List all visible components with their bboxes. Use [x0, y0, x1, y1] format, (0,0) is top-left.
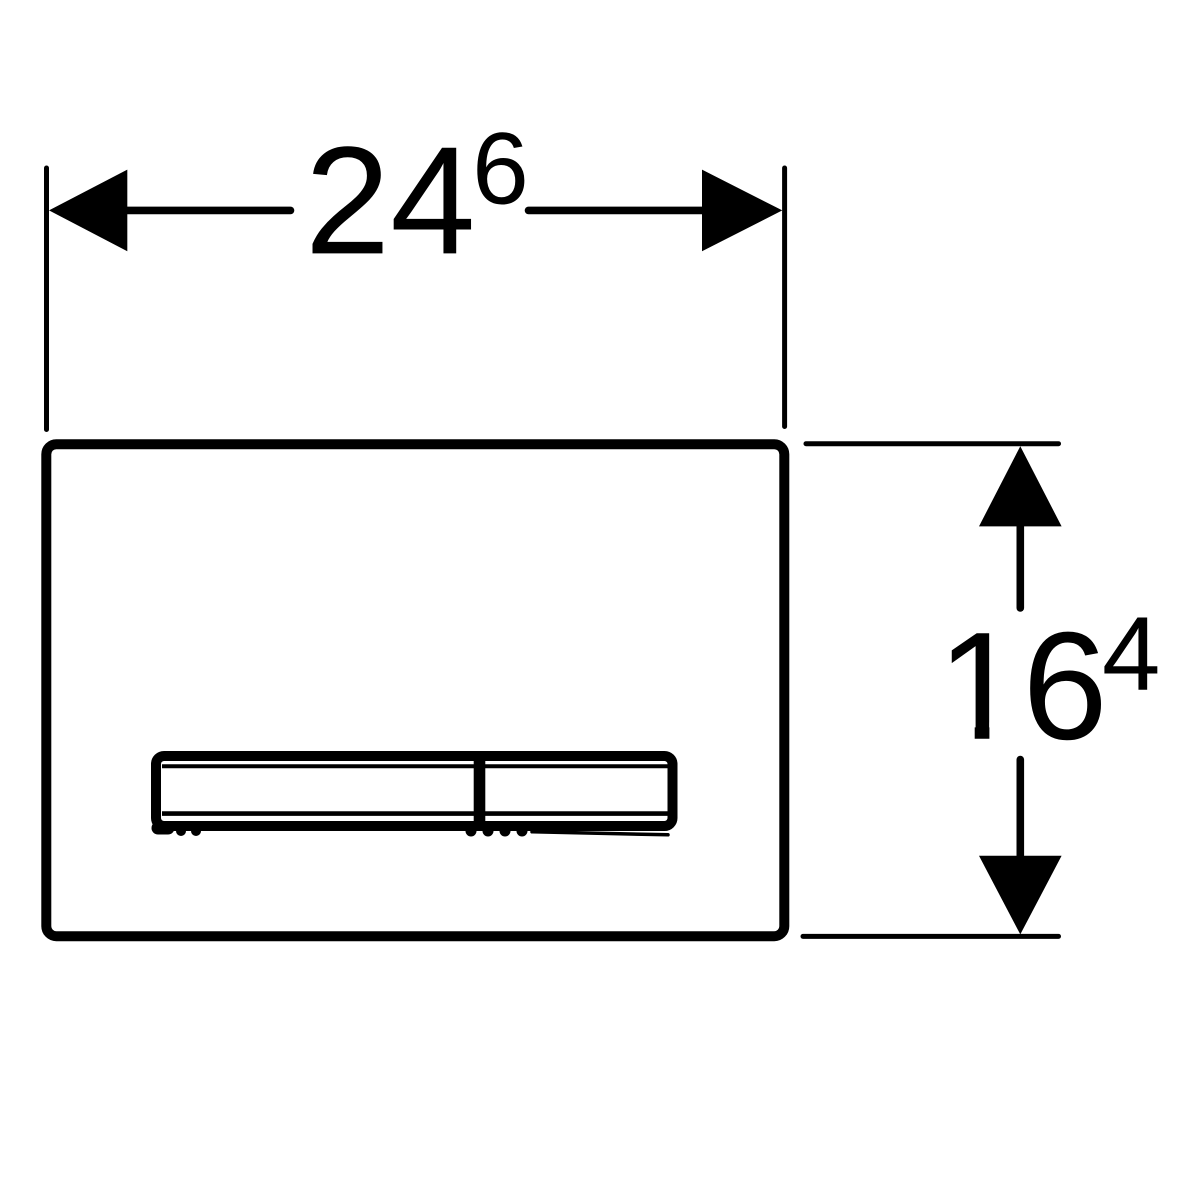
svg-text:16: 16: [937, 600, 1108, 772]
svg-text:4: 4: [1102, 596, 1160, 713]
svg-text:24: 24: [305, 114, 476, 286]
svg-text:6: 6: [472, 112, 529, 226]
